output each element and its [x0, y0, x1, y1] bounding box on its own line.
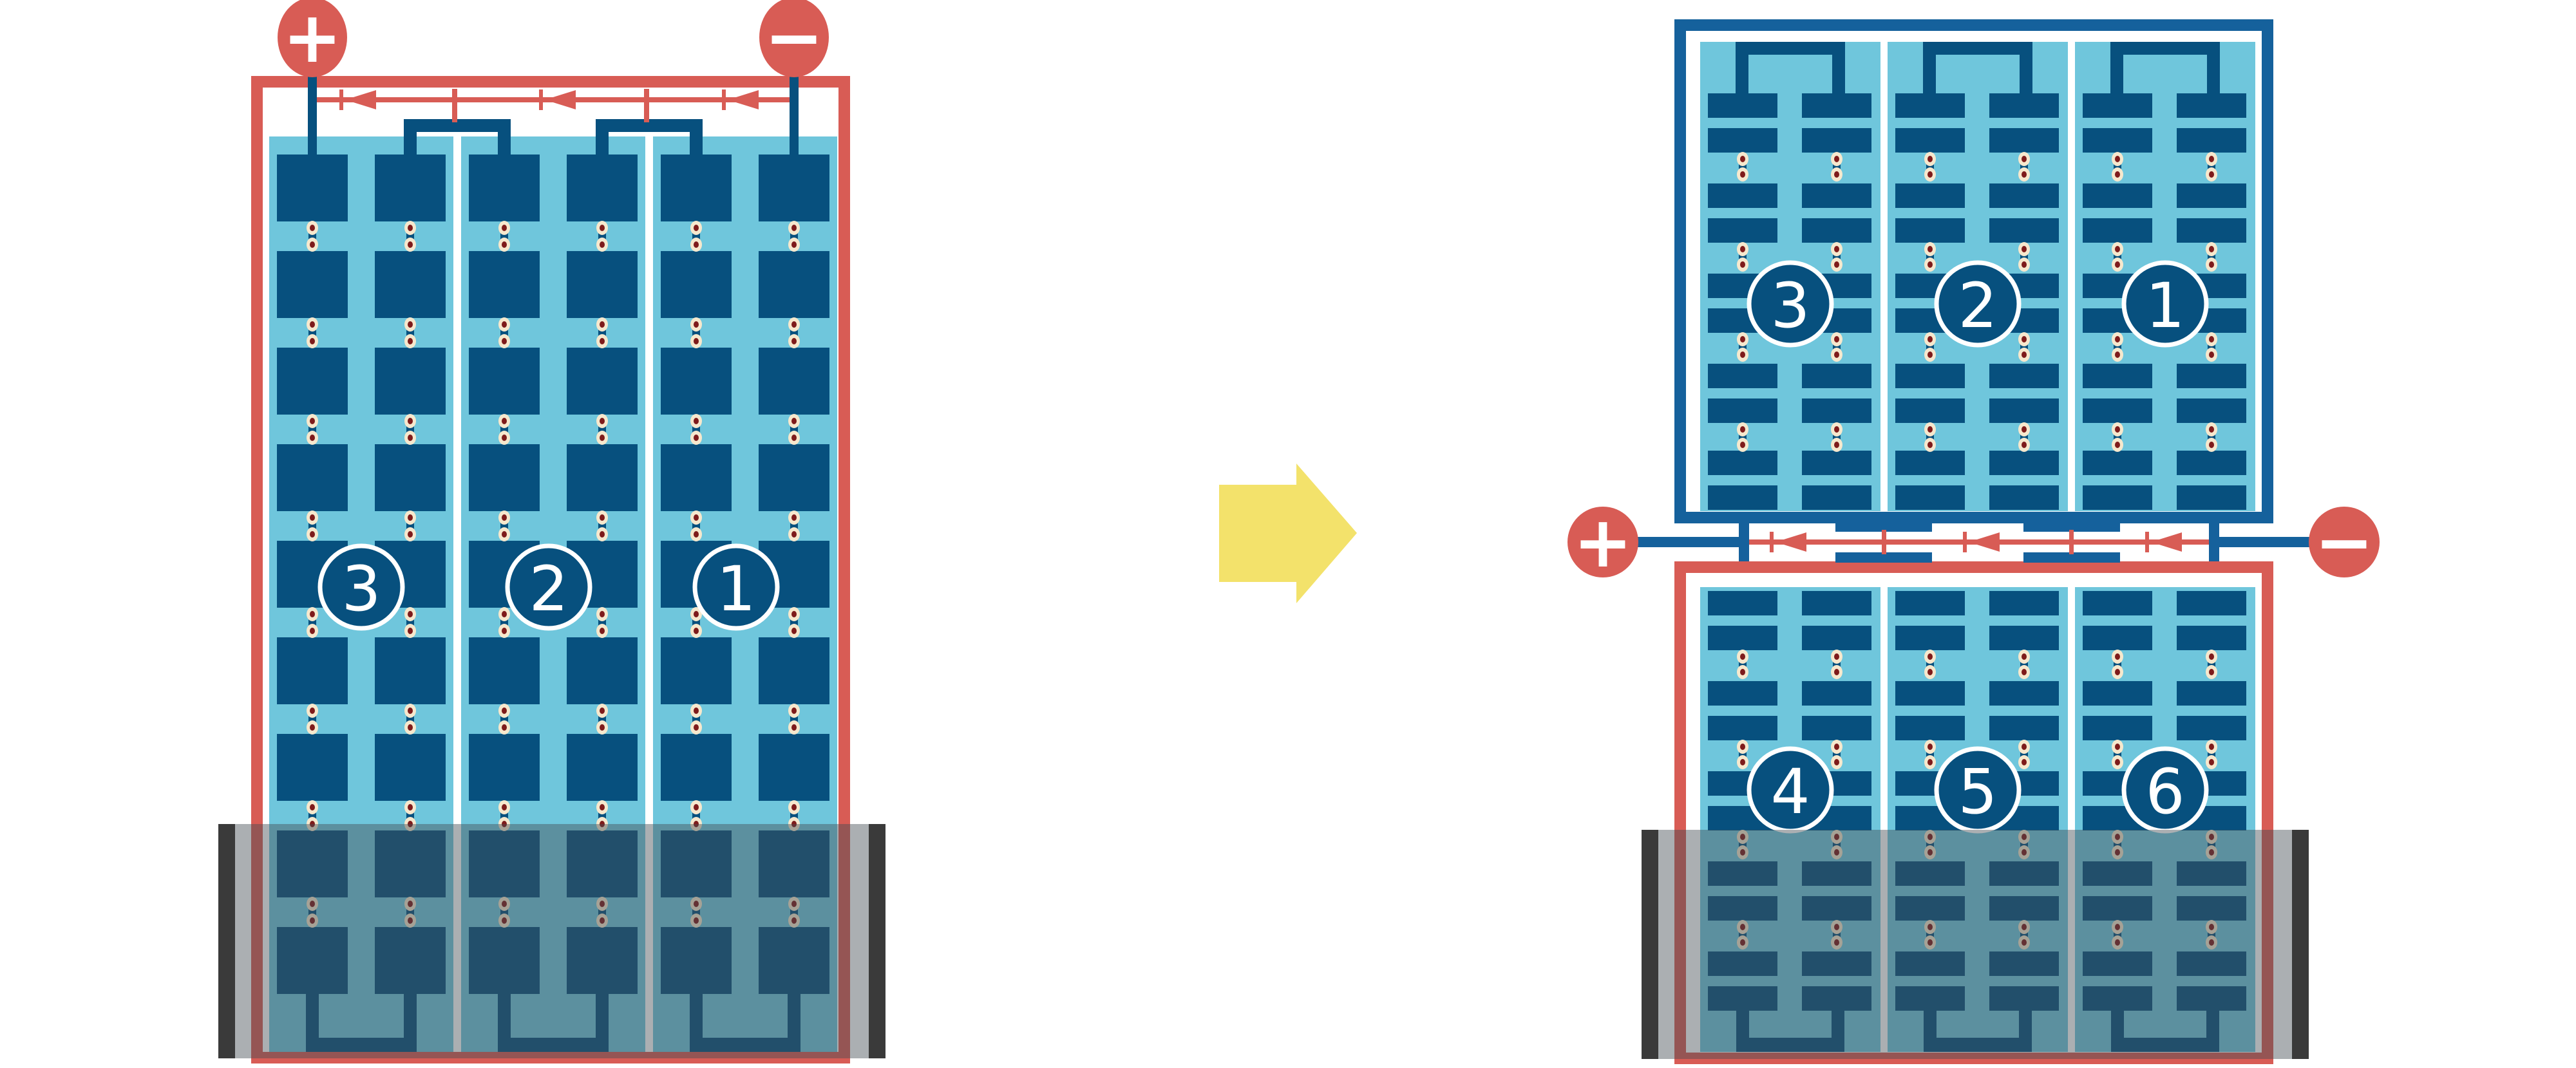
solder-dot-core — [2022, 336, 2027, 342]
solder-dot-core — [694, 418, 699, 424]
half-cell — [1802, 591, 1871, 615]
solder-dot-core — [694, 241, 699, 248]
solder-dot-core — [408, 628, 413, 634]
half-cell — [1895, 364, 1965, 388]
solder-dot-core — [310, 241, 315, 248]
solder-dot-core — [791, 338, 797, 344]
solder-dot-core — [502, 418, 507, 424]
diode-bar — [1770, 532, 1774, 552]
top-busbar — [498, 132, 511, 159]
half-cell — [1802, 681, 1871, 706]
solder-dot-core — [2209, 669, 2214, 675]
string-number: 1 — [2145, 270, 2184, 342]
solder-dot-core — [2115, 669, 2120, 675]
solder-dot-core — [2115, 442, 2120, 448]
half-cell — [1989, 591, 2059, 615]
solder-dot-core — [694, 611, 699, 617]
solder-dot-core — [791, 707, 797, 714]
right-positive-terminal: + — [1567, 501, 1638, 583]
solder-dot-core — [600, 531, 605, 538]
top-busbar — [1923, 55, 1936, 95]
solar-cell — [567, 348, 638, 415]
half-cell — [1802, 716, 1871, 740]
right-top-string-badge-1: 1 — [2124, 263, 2206, 345]
solar-cell — [469, 348, 540, 415]
center-junction-wiring — [1739, 521, 2219, 563]
diode-icon — [345, 90, 376, 109]
solder-dot-core — [791, 225, 797, 231]
solder-dot-core — [791, 628, 797, 634]
solar-cell — [759, 155, 829, 221]
solder-dot-core — [408, 724, 413, 731]
solder-dot-core — [791, 418, 797, 424]
right-top-string-badge-2: 2 — [1937, 263, 2019, 345]
half-cell — [1895, 183, 1965, 208]
solder-dot-core — [310, 338, 315, 344]
string-number: 4 — [1770, 756, 1810, 828]
solder-dot-core — [502, 435, 507, 441]
positive-lead — [308, 72, 317, 162]
solder-dot-core — [600, 628, 605, 634]
half-cell — [1708, 218, 1777, 243]
half-cell — [1708, 183, 1777, 208]
solder-dot-core — [2209, 653, 2214, 660]
solder-dot-core — [1927, 759, 1933, 765]
solar-cell — [375, 348, 446, 415]
module-shading-diagram: + − 3 2 1 — [0, 0, 2576, 1068]
diode-bar — [2145, 532, 2149, 552]
solder-dot-core — [2209, 351, 2214, 358]
solder-dot-core — [1834, 744, 1839, 750]
solder-dot-core — [791, 804, 797, 810]
solder-dot-core — [408, 804, 413, 810]
solar-cell — [277, 348, 348, 415]
half-cell — [1895, 716, 1965, 740]
solder-dot-core — [600, 225, 605, 231]
solder-dot-core — [2209, 171, 2214, 178]
solder-dot-core — [2209, 246, 2214, 252]
solder-dot-core — [1834, 336, 1839, 342]
solder-dot-core — [2022, 156, 2027, 162]
half-cell — [1989, 128, 2059, 153]
solder-dot-core — [1740, 261, 1745, 268]
half-cell — [1708, 485, 1777, 510]
half-cell — [1895, 218, 1965, 243]
solder-dot-core — [408, 418, 413, 424]
solder-dot-core — [1834, 426, 1839, 433]
half-cell — [1802, 183, 1871, 208]
solder-dot-core — [1927, 669, 1933, 675]
solder-dot-core — [2209, 261, 2214, 268]
string-number: 2 — [1958, 270, 1997, 342]
solar-cell — [759, 348, 829, 415]
solder-dot-core — [1740, 171, 1745, 178]
solder-dot-core — [694, 225, 699, 231]
solder-dot-core — [1740, 744, 1745, 750]
solder-dot-core — [1834, 261, 1839, 268]
solder-dot-core — [600, 707, 605, 714]
solder-dot-core — [1740, 351, 1745, 358]
left-string-badge-2: 2 — [507, 546, 590, 628]
minus-label: − — [2315, 501, 2374, 583]
solar-cell — [567, 155, 638, 221]
half-cell — [2177, 626, 2246, 650]
solder-dot-core — [791, 531, 797, 538]
solar-cell — [375, 251, 446, 318]
half-cell — [1708, 716, 1777, 740]
solder-dot-core — [310, 804, 315, 810]
solar-cell — [469, 251, 540, 318]
solar-cell — [759, 251, 829, 318]
solder-dot-core — [791, 611, 797, 617]
solder-dot-core — [1927, 653, 1933, 660]
solar-cell — [661, 444, 732, 511]
solder-dot-core — [600, 321, 605, 328]
bypass-tap — [452, 89, 457, 122]
solder-dot-core — [1834, 156, 1839, 162]
solder-dot-core — [1834, 653, 1839, 660]
solder-dot-core — [2115, 351, 2120, 358]
solder-dot-core — [1927, 156, 1933, 162]
solder-dot-core — [502, 531, 507, 538]
positive-lead — [1638, 537, 1741, 547]
solder-dot-core — [502, 707, 507, 714]
solder-dot-core — [310, 628, 315, 634]
solder-dot-core — [502, 724, 507, 731]
half-cell — [1708, 681, 1777, 706]
solder-dot-core — [2115, 759, 2120, 765]
solder-dot-core — [408, 241, 413, 248]
solder-dot-core — [694, 724, 699, 731]
top-busbar — [404, 132, 417, 159]
left-bypass-diode-wiring — [312, 89, 794, 122]
top-busbar — [1736, 55, 1748, 95]
solar-cell — [567, 637, 638, 704]
solder-dot-core — [1834, 246, 1839, 252]
string-number: 3 — [1770, 270, 1810, 342]
half-cell — [1895, 398, 1965, 423]
solder-dot-core — [1927, 426, 1933, 433]
diode-bar — [539, 89, 543, 110]
solder-dot-core — [2209, 426, 2214, 433]
half-cell — [1708, 128, 1777, 153]
shadow-region — [1642, 830, 2309, 1059]
solar-cell — [375, 637, 446, 704]
diode-bar — [339, 89, 343, 110]
solder-dot-core — [694, 707, 699, 714]
solar-cell — [277, 734, 348, 801]
solder-dot-core — [310, 418, 315, 424]
solder-dot-core — [2115, 261, 2120, 268]
solder-dot-core — [791, 435, 797, 441]
solder-dot-core — [2022, 351, 2027, 358]
solder-dot-core — [310, 531, 315, 538]
solder-dot-core — [600, 418, 605, 424]
half-cell — [1895, 93, 1965, 118]
solder-dot-core — [791, 514, 797, 521]
string-number: 1 — [716, 553, 755, 625]
solar-cell — [759, 734, 829, 801]
half-cell — [1895, 681, 1965, 706]
solder-dot-core — [310, 707, 315, 714]
half-cell — [1989, 398, 2059, 423]
half-cell — [1989, 626, 2059, 650]
half-cell — [1989, 485, 2059, 510]
solder-dot-core — [1740, 442, 1745, 448]
solder-dot-core — [1834, 669, 1839, 675]
solder-dot-core — [408, 611, 413, 617]
solder-dot-core — [1740, 759, 1745, 765]
solder-dot-core — [408, 225, 413, 231]
solder-dot-core — [1927, 442, 1933, 448]
shadow-region — [218, 824, 885, 1058]
solder-dot-core — [694, 338, 699, 344]
solder-dot-core — [2022, 653, 2027, 660]
half-cell — [2083, 128, 2152, 153]
half-cell — [1802, 364, 1871, 388]
half-cell — [2083, 93, 2152, 118]
negative-lead — [2219, 537, 2311, 547]
left-negative-terminal: − — [759, 0, 829, 79]
string-number: 6 — [2145, 756, 2184, 828]
bypass-tap — [644, 89, 649, 122]
shade-edge-bar — [218, 824, 235, 1058]
half-cell — [2177, 364, 2246, 388]
solder-dot-core — [2115, 336, 2120, 342]
solder-dot-core — [310, 611, 315, 617]
solder-dot-core — [1740, 669, 1745, 675]
solar-cell — [469, 444, 540, 511]
top-busbar — [690, 132, 703, 159]
solder-dot-core — [1740, 246, 1745, 252]
solder-dot-core — [2209, 156, 2214, 162]
half-cell — [1989, 681, 2059, 706]
solder-dot-core — [2115, 744, 2120, 750]
half-cell — [2083, 716, 2152, 740]
minus-label: − — [764, 0, 824, 79]
solder-dot-core — [1834, 351, 1839, 358]
half-cell — [2177, 681, 2246, 706]
half-cell — [1989, 183, 2059, 208]
solder-dot-core — [502, 225, 507, 231]
solar-cell — [661, 348, 732, 415]
solder-dot-core — [502, 514, 507, 521]
top-busbar — [1736, 42, 1845, 55]
solder-dot-core — [600, 804, 605, 810]
half-cell — [1895, 591, 1965, 615]
half-cell — [2177, 451, 2246, 475]
solder-dot-core — [600, 435, 605, 441]
half-cell — [1802, 626, 1871, 650]
solder-dot-core — [408, 435, 413, 441]
solder-dot-core — [310, 435, 315, 441]
half-cell — [2177, 398, 2246, 423]
solder-dot-core — [694, 514, 699, 521]
solder-dot-core — [310, 514, 315, 521]
solder-dot-core — [2022, 669, 2027, 675]
shade-edge-bar — [1642, 830, 1658, 1059]
negative-lead — [790, 72, 799, 162]
diode-icon — [1776, 532, 1806, 552]
solder-dot-core — [791, 724, 797, 731]
solar-cell — [277, 251, 348, 318]
solar-cell — [469, 637, 540, 704]
half-cell — [2177, 218, 2246, 243]
plus-label: + — [283, 0, 342, 79]
solder-dot-core — [791, 321, 797, 328]
half-cell — [1989, 364, 2059, 388]
solder-dot-core — [1927, 336, 1933, 342]
solder-dot-core — [2115, 426, 2120, 433]
string-number: 3 — [341, 553, 381, 625]
solder-dot-core — [1740, 653, 1745, 660]
solar-cell — [567, 251, 638, 318]
half-cell — [1989, 218, 2059, 243]
top-busbar — [2020, 55, 2032, 95]
solder-dot-core — [600, 724, 605, 731]
solder-dot-core — [408, 338, 413, 344]
diode-icon — [1969, 532, 2000, 552]
solder-dot-core — [2022, 744, 2027, 750]
solder-dot-core — [2209, 759, 2214, 765]
half-cell — [2083, 626, 2152, 650]
solder-dot-core — [2022, 759, 2027, 765]
half-cell — [2083, 364, 2152, 388]
solder-dot-core — [408, 531, 413, 538]
right-module: + − 3 2 1 4 5 6 — [1567, 25, 2380, 1059]
solar-cell — [567, 734, 638, 801]
half-cell — [2177, 591, 2246, 615]
solder-dot-core — [310, 724, 315, 731]
right-top-string-badge-3: 3 — [1749, 263, 1832, 345]
solder-dot-core — [2022, 442, 2027, 448]
half-cell — [1708, 93, 1777, 118]
solar-cell — [469, 155, 540, 221]
string-number: 5 — [1958, 756, 1997, 828]
half-cell — [1708, 398, 1777, 423]
half-cell — [1802, 398, 1871, 423]
top-busbar — [1923, 42, 2032, 55]
solder-dot-core — [502, 628, 507, 634]
half-cell — [2083, 451, 2152, 475]
solder-dot-core — [600, 611, 605, 617]
solder-dot-core — [502, 338, 507, 344]
solder-dot-core — [408, 321, 413, 328]
solar-cell — [277, 155, 348, 221]
string-number: 2 — [529, 553, 568, 625]
top-busbar — [1832, 55, 1845, 95]
right-bottom-string-badge-4: 4 — [1749, 749, 1832, 831]
solder-dot-core — [600, 338, 605, 344]
solar-cell — [277, 444, 348, 511]
half-cell — [1989, 451, 2059, 475]
diode-icon — [2151, 532, 2182, 552]
half-cell — [2083, 485, 2152, 510]
half-cell — [1802, 128, 1871, 153]
solder-dot-core — [2022, 426, 2027, 433]
half-cell — [2083, 218, 2152, 243]
half-cell — [1895, 626, 1965, 650]
half-cell — [2177, 485, 2246, 510]
diode-bar — [722, 89, 726, 110]
solder-dot-core — [2209, 744, 2214, 750]
solder-dot-core — [2115, 171, 2120, 178]
left-module: + − 3 2 1 — [218, 0, 885, 1058]
half-cell — [1802, 485, 1871, 510]
transform-arrow-icon — [1219, 464, 1357, 603]
solder-dot-core — [2115, 156, 2120, 162]
top-busbar — [2110, 55, 2123, 95]
diode-bar — [1963, 532, 1967, 552]
half-cell — [1708, 364, 1777, 388]
solder-dot-core — [1740, 336, 1745, 342]
left-positive-terminal: + — [278, 0, 347, 79]
solder-dot-core — [408, 514, 413, 521]
figure-canvas: + − 3 2 1 — [0, 0, 2576, 1068]
half-cell — [1708, 591, 1777, 615]
solder-dot-core — [2115, 653, 2120, 660]
half-cell — [2177, 128, 2246, 153]
solar-cell — [759, 444, 829, 511]
solder-dot-core — [502, 241, 507, 248]
bypass-tap — [1882, 530, 1886, 554]
half-cell — [1708, 626, 1777, 650]
half-cell — [1802, 93, 1871, 118]
half-cell — [1895, 451, 1965, 475]
solder-dot-core — [502, 321, 507, 328]
half-cell — [1802, 451, 1871, 475]
solar-cell — [661, 637, 732, 704]
solder-dot-core — [2209, 336, 2214, 342]
diode-icon — [728, 90, 759, 109]
half-cell — [2177, 183, 2246, 208]
half-cell — [1802, 218, 1871, 243]
half-cell — [1989, 716, 2059, 740]
top-busbar — [2110, 42, 2220, 55]
solar-cell — [277, 637, 348, 704]
solar-cell — [661, 251, 732, 318]
solar-cell — [375, 155, 446, 221]
solder-dot-core — [694, 628, 699, 634]
solder-dot-core — [310, 225, 315, 231]
right-bottom-string-badge-5: 5 — [1937, 749, 2019, 831]
solder-dot-core — [1834, 759, 1839, 765]
solder-dot-core — [1740, 426, 1745, 433]
plus-label: + — [1573, 501, 1633, 583]
half-cell — [2083, 398, 2152, 423]
solar-cell — [661, 734, 732, 801]
bypass-tap — [2069, 530, 2074, 554]
right-bottom-string-badge-6: 6 — [2124, 749, 2206, 831]
solder-dot-core — [2022, 261, 2027, 268]
series-link — [2209, 523, 2219, 561]
solder-dot-core — [2022, 171, 2027, 178]
half-cell — [2083, 591, 2152, 615]
half-cell — [2083, 183, 2152, 208]
solder-dot-core — [1927, 744, 1933, 750]
shade-edge-bar — [2292, 830, 2309, 1059]
right-negative-terminal: − — [2309, 501, 2380, 583]
top-busbar — [2207, 55, 2220, 95]
solar-cell — [661, 155, 732, 221]
solar-cell — [759, 637, 829, 704]
solder-dot-core — [2022, 246, 2027, 252]
solder-dot-core — [694, 804, 699, 810]
solar-cell — [469, 734, 540, 801]
solder-dot-core — [2209, 442, 2214, 448]
half-cell — [2083, 681, 2152, 706]
solder-dot-core — [502, 611, 507, 617]
